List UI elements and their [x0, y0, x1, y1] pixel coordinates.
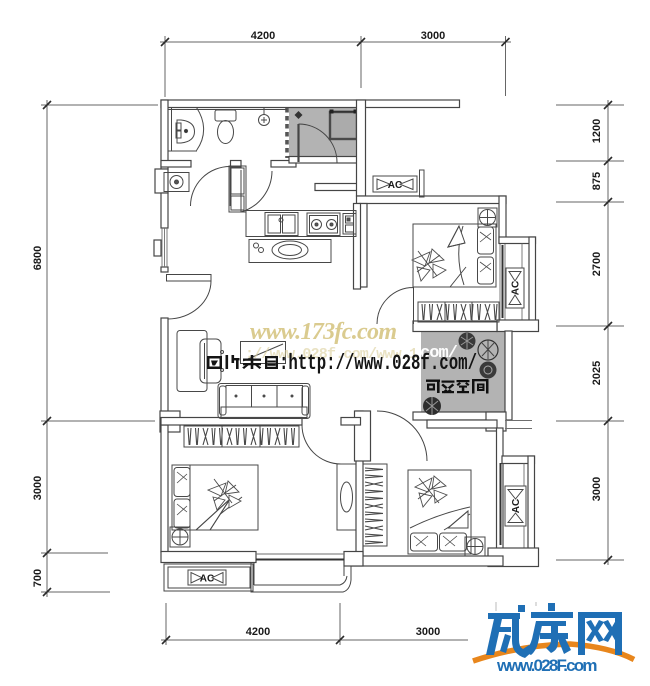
svg-text:www.028F.com: www.028F.com [496, 656, 598, 675]
svg-text:2700: 2700 [591, 252, 603, 276]
svg-text:3000: 3000 [416, 626, 440, 638]
svg-text:700: 700 [32, 569, 44, 587]
svg-text:6800: 6800 [32, 246, 44, 270]
svg-text:4200: 4200 [246, 626, 270, 638]
svg-text:4200: 4200 [251, 30, 275, 42]
svg-text:875: 875 [591, 172, 603, 190]
svg-text::http://www.028f.com/: :http://www.028f.com/ [279, 351, 477, 376]
svg-text:AC: AC [511, 499, 522, 513]
svg-text:3000: 3000 [421, 30, 445, 42]
svg-text:AC: AC [511, 281, 522, 295]
svg-text:www.173fc.com: www.173fc.com [250, 319, 397, 345]
svg-text:1200: 1200 [591, 119, 603, 143]
svg-text:AC: AC [388, 180, 402, 191]
svg-text:2025: 2025 [591, 361, 603, 385]
svg-text:3000: 3000 [32, 476, 44, 500]
svg-text:AC: AC [200, 574, 214, 585]
svg-text:3000: 3000 [591, 477, 603, 501]
